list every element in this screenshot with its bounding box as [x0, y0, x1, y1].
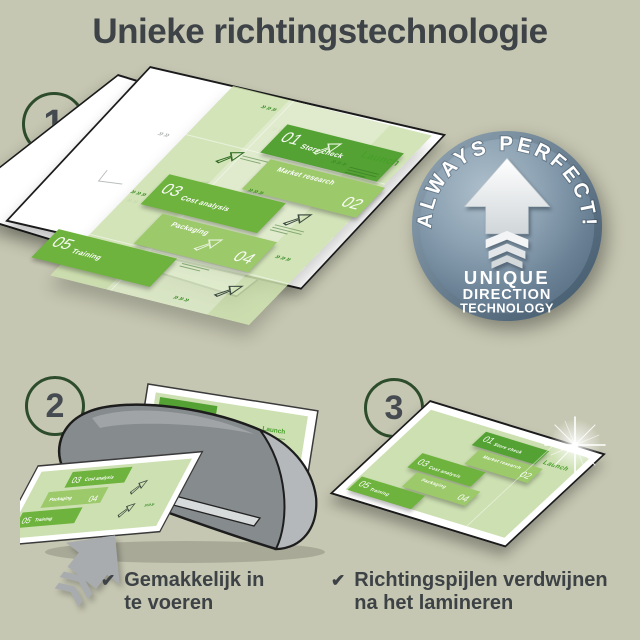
always-perfect-badge: ALWAYS PERFECT! UNIQUE DIRECTION TECHNOL…	[410, 129, 604, 323]
check-icon: ✔	[101, 569, 115, 615]
direction-arrows-mark: »»»	[272, 252, 295, 263]
check-text-line2: te voeren	[124, 592, 213, 614]
page-title: Unieke richtingstechnologie	[0, 12, 640, 52]
badge-line-unique: UNIQUE	[464, 267, 550, 288]
badge-line-technology: TECHNOLOGY	[460, 301, 554, 315]
check-text-line1: Richtingspijlen verdwijnen	[354, 569, 607, 591]
block-number: 02	[336, 195, 366, 213]
sketch-line	[98, 170, 131, 184]
check-text-line2: na het lamineren	[354, 592, 513, 614]
check-icon: ✔	[331, 569, 345, 615]
block-label: Training	[69, 249, 103, 262]
checklist-item-easy-feed: ✔ Gemakkelijk in te voeren	[101, 569, 264, 615]
block-label: Training	[368, 487, 391, 497]
step-3-number: 3	[385, 389, 404, 428]
launch-label: Launch	[540, 460, 570, 473]
checklist-item-arrows-disappear: ✔ Richtingspijlen verdwijnen na het lami…	[331, 569, 608, 615]
check-text-line1: Gemakkelijk in	[124, 569, 264, 591]
block-label: Cost analysis	[178, 195, 231, 213]
block-number: 04	[228, 250, 258, 268]
badge-line-direction: DIRECTION	[463, 287, 552, 303]
infographic-canvas: Unieke richtingstechnologie 1 »» »» »» »…	[0, 0, 640, 640]
block-number: 04	[454, 493, 471, 503]
block-label: Store check	[492, 442, 524, 454]
sketch-mark: »»	[155, 128, 175, 139]
